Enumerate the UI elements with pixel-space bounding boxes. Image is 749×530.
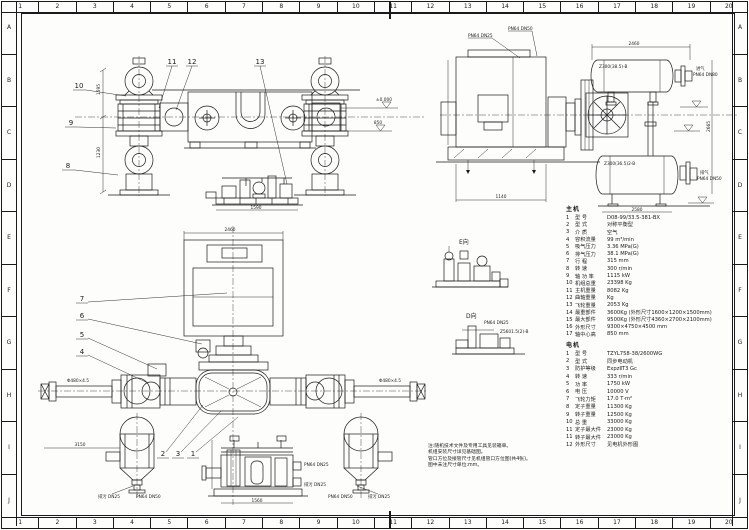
- note-line: 图中未注尺寸单位:mm。: [428, 463, 578, 469]
- spec-row-value: 850 mm: [607, 331, 742, 337]
- spec-row: 8 定子重量 11300 Kg: [566, 403, 742, 411]
- spec-row-label: 排气压力: [575, 251, 607, 258]
- spec-row-label: 轴中心高: [575, 331, 607, 338]
- spec-row-number: 2: [566, 358, 575, 364]
- part-tag: Z5601.5(2)-B: [500, 329, 528, 335]
- vessel-tag: Z300(38.5)-B: [599, 64, 627, 70]
- spec-row-number: 8: [566, 266, 575, 272]
- front-elevation-view: 1595 1230 ±0.000 850 10 9 8 11 12 13: [62, 56, 425, 196]
- level-label: ±0.000: [376, 97, 392, 103]
- spec-row-label: 机组总重: [575, 280, 607, 287]
- spec-row-number: 7: [566, 396, 575, 402]
- spec-list-motor-rows: 1 型 号 TZYL758-38/2600WG 2 型 式 同步电动机 3 防护…: [566, 350, 742, 449]
- spec-row-label: 飞轮重量: [575, 302, 607, 309]
- spec-row: 17 轴中心高 850 mm: [566, 331, 742, 338]
- spec-row-label: 轴 功 率: [575, 273, 607, 280]
- vessel-tag: Z300(36.5)2-B: [604, 161, 635, 167]
- spec-row-label: 最大部件: [575, 316, 607, 323]
- plan-buffer-vessel: [106, 413, 154, 498]
- spec-row-value: 23398 Kg: [607, 280, 742, 286]
- spec-row: 9 轴 功 率 1115 kW: [566, 272, 742, 279]
- spec-row: 16 外形尺寸 9300×4750×4500 mm: [566, 323, 742, 330]
- spec-row-value: 8082 Kg: [607, 288, 742, 294]
- spec-row-value: 9300×4750×4500 mm: [607, 324, 742, 330]
- spec-row-number: 1: [566, 215, 575, 221]
- spec-row-number: 15: [566, 317, 575, 323]
- nozzle-label: PN64 DN50: [697, 176, 722, 182]
- spec-row: 3 防护等级 ExpzⅡT3 Gc: [566, 365, 742, 373]
- spec-row-label: 曲轴重量: [575, 294, 607, 301]
- spec-row-number: 3: [566, 229, 575, 235]
- spec-row-label: 型 式: [575, 221, 607, 228]
- balloon-4: 4: [80, 348, 85, 356]
- spec-row-label: 总 重: [575, 419, 607, 426]
- dimension-label: 2665: [706, 121, 712, 132]
- spec-row-label: 转子重量: [575, 411, 607, 418]
- spec-list-main-rows: 1 型 号 D08-99/33.5-381-BX 2 型 式 对称平衡型 3 介…: [566, 214, 742, 338]
- spec-row-value: 9500Kg (外形尺寸4360×2700×2100mm): [607, 316, 742, 323]
- balloon-11: 11: [168, 58, 177, 66]
- balloon-3: 3: [176, 450, 180, 458]
- spec-row: 4 转 速 333 r/min: [566, 373, 742, 381]
- spec-list-motor: 电机 1 型 号 TZYL758-38/2600WG 2 型 式 同步电动机 3…: [566, 340, 742, 449]
- spec-row-value: ExpzⅡT3 Gc: [607, 366, 742, 372]
- dimension-label: 1560: [252, 498, 263, 504]
- spec-row-label: 主机重量: [575, 287, 607, 294]
- spec-row: 10 机组总重 23398 Kg: [566, 280, 742, 287]
- spec-row-value: 3.36 MPa(G): [607, 244, 742, 250]
- spec-row-label: 最重部件: [575, 309, 607, 316]
- dimension-label: 1595: [96, 84, 102, 95]
- spec-row: 11 转子最大件 23000 Kg: [566, 434, 742, 442]
- spec-row-value: TZYL758-38/2600WG: [607, 351, 742, 357]
- auxiliary-skid-detail-bottom: 1560 PN64 DN25 排污 DN25: [202, 436, 329, 504]
- spec-row-value: D08-99/33.5-381-BX: [607, 215, 742, 221]
- spec-row-number: 14: [566, 310, 575, 316]
- spec-row-number: 17: [566, 331, 575, 337]
- detail-view-e: E向: [432, 238, 508, 287]
- connection-label: PN64 DN25: [484, 320, 509, 326]
- spec-row-label: 型 号: [575, 214, 607, 221]
- detail-view-label: D向: [466, 312, 477, 320]
- spec-row-number: 8: [566, 404, 575, 410]
- spec-row: 15 最大部件 9500Kg (外形尺寸4360×2700×2100mm): [566, 316, 742, 323]
- balloon-5: 5: [80, 331, 84, 339]
- spec-row-label: 外形尺寸: [575, 441, 607, 448]
- plan-cylinder-assembly-mirrored: [270, 375, 425, 408]
- balloon-1: 1: [191, 450, 195, 458]
- spec-row-number: 2: [566, 222, 575, 228]
- spec-row-value: 对称平衡型: [607, 221, 742, 228]
- spec-row-number: 1: [566, 351, 575, 357]
- dimension-label: 2460: [225, 227, 236, 233]
- spec-row-value: 300 r/min: [607, 266, 742, 272]
- spec-row: 12 外形尺寸 见电机外形图: [566, 441, 742, 449]
- spec-row-label: 介 质: [575, 229, 607, 236]
- spec-row-label: 外形尺寸: [575, 324, 607, 331]
- spec-row: 10 总 重 33000 Kg: [566, 418, 742, 426]
- spec-row-value: 315 mm: [607, 258, 742, 264]
- spec-row: 7 行 程 315 mm: [566, 258, 742, 265]
- spec-row-number: 10: [566, 419, 575, 425]
- nozzle-label: 排污 DN25: [368, 493, 390, 500]
- connection-label: 排污 DN25: [304, 481, 326, 488]
- spec-row-number: 5: [566, 244, 575, 250]
- pipe-spec-label: Φ480×4.5: [67, 378, 89, 384]
- spec-row-value: 17.0 T·m²: [607, 396, 742, 402]
- spec-row-label: 定子最大件: [575, 426, 607, 433]
- spec-row: 5 吸气压力 3.36 MPa(G): [566, 243, 742, 250]
- spec-row-label: 转 速: [575, 265, 607, 272]
- connection-label: PN64 DN25: [304, 462, 329, 468]
- spec-row-number: 6: [566, 251, 575, 257]
- spec-row-value: 23000 Kg: [607, 434, 742, 440]
- drawing-sheet: { "sheet": {"bg": "#fdfdfc", "ink": "#1a…: [0, 0, 749, 530]
- spec-row-label: 型 式: [575, 358, 607, 365]
- nozzle-label: 排气: [700, 169, 709, 176]
- notes-block: 注:随机技术文件及专用工具见装箱单。机组安装尺寸详见基础图。管口方位及接管尺寸见…: [428, 444, 578, 469]
- plan-buffer-vessel-mirrored: [344, 413, 392, 498]
- spec-row-label: 行 程: [575, 258, 607, 265]
- spec-row: 5 功 率 1750 kW: [566, 380, 742, 388]
- spec-row: 2 型 式 对称平衡型: [566, 221, 742, 228]
- spec-row: 8 转 速 300 r/min: [566, 265, 742, 272]
- nozzle-label: 进气: [696, 65, 705, 72]
- spec-row-value: 3600Kg (外形尺寸1600×1200×1500mm): [607, 309, 742, 316]
- spec-row-label: 容积流量: [575, 236, 607, 243]
- spec-row-label: 型 号: [575, 350, 607, 357]
- spec-row-number: 4: [566, 237, 575, 243]
- spec-row-number: 7: [566, 258, 575, 264]
- plan-cylinder-assembly: [41, 375, 196, 408]
- spec-row-label: 电 压: [575, 388, 607, 395]
- spec-row: 1 型 号 TZYL758-38/2600WG: [566, 350, 742, 358]
- spec-row-number: 9: [566, 412, 575, 418]
- spec-row-number: 16: [566, 324, 575, 330]
- balloon-6: 6: [80, 312, 85, 320]
- spec-row: 1 型 号 D08-99/33.5-381-BX: [566, 214, 742, 221]
- dimension-label: 1230: [96, 147, 102, 158]
- balloon-9: 9: [69, 119, 73, 127]
- spec-row-value: 99 m³/min: [607, 237, 742, 243]
- spec-list-main: 主机 1 型 号 D08-99/33.5-381-BX 2 型 式 对称平衡型 …: [566, 204, 742, 338]
- spec-row: 7 飞轮力矩 17.0 T·m²: [566, 396, 742, 404]
- spec-row: 11 主机重量 8082 Kg: [566, 287, 742, 294]
- spec-row-number: 11: [566, 427, 575, 433]
- spec-row-label: 转 速: [575, 373, 607, 380]
- spec-row-value: 12500 Kg: [607, 412, 742, 418]
- spec-row-value: 同步电动机: [607, 358, 742, 365]
- spec-row-value: 33000 Kg: [607, 419, 742, 425]
- level-label: 850: [374, 120, 382, 126]
- spec-row-number: 10: [566, 280, 575, 286]
- spec-row-value: 10000 V: [607, 389, 742, 395]
- spec-row: 4 容积流量 99 m³/min: [566, 236, 742, 243]
- dimension-label: 1590: [251, 205, 262, 211]
- side-elevation-view: Z300(38.5)-B 进气 PN64 DN80 Z300(36.5)2-B …: [436, 26, 737, 213]
- spec-row-label: 功 率: [575, 381, 607, 388]
- balloon-12: 12: [188, 58, 197, 66]
- spec-row-label: 转子最大件: [575, 434, 607, 441]
- spec-row: 9 转子重量 12500 Kg: [566, 411, 742, 419]
- spec-row-value: 空气: [607, 229, 742, 236]
- spec-row: 6 排气压力 38.1 MPa(G): [566, 250, 742, 257]
- spec-row-value: 2053 Kg: [607, 302, 742, 308]
- spec-row: 6 电 压 10000 V: [566, 388, 742, 396]
- spec-row-value: 333 r/min: [607, 374, 742, 380]
- spec-row: 13 飞轮重量 2053 Kg: [566, 302, 742, 309]
- spec-row: 14 最重部件 3600Kg (外形尺寸1600×1200×1500mm): [566, 309, 742, 316]
- balloon-7: 7: [80, 295, 84, 303]
- dimension-label: 3150: [75, 442, 86, 448]
- spec-row: 12 曲轴重量 Kg: [566, 294, 742, 301]
- spec-row-number: 6: [566, 389, 575, 395]
- spec-row-value: 23000 Kg: [607, 427, 742, 433]
- spec-row-number: 12: [566, 295, 575, 301]
- spec-row-number: 13: [566, 302, 575, 308]
- balloon-10: 10: [75, 82, 84, 90]
- balloon-2: 2: [161, 450, 165, 458]
- nozzle-label: PN64 DN50: [136, 494, 161, 500]
- spec-row-value: Kg: [607, 295, 742, 301]
- detail-view-d: D向 PN64 DN25 Z5601.5(2)-B: [452, 312, 528, 354]
- spec-row: 3 介 质 空气: [566, 229, 742, 236]
- spec-row-label: 飞轮力矩: [575, 396, 607, 403]
- dimension-label: 2460: [629, 41, 640, 47]
- pipe-spec-label: Φ480×4.5: [379, 378, 401, 384]
- plan-view: 2460 3150 Φ480×4.5 Φ480×4.5 排污 DN25 PN64…: [38, 226, 428, 505]
- spec-row-number: 3: [566, 366, 575, 372]
- spec-list-main-title: 主机: [566, 204, 742, 213]
- spec-row-label: 吸气压力: [575, 243, 607, 250]
- spec-row-number: 5: [566, 381, 575, 387]
- nozzle-label: PN64 DN50: [328, 494, 353, 500]
- spec-row-number: 11: [566, 434, 575, 440]
- spec-list-motor-title: 电机: [566, 340, 742, 349]
- detail-view-label: E向: [459, 238, 469, 246]
- spec-row-number: 4: [566, 374, 575, 380]
- spec-row: 2 型 式 同步电动机: [566, 358, 742, 366]
- spec-row: 11 定子最大件 23000 Kg: [566, 426, 742, 434]
- spec-row-value: 见电机外形图: [607, 441, 742, 448]
- nozzle-label: 排污 DN25: [98, 493, 120, 500]
- spec-row-number: 11: [566, 288, 575, 294]
- spec-row-label: 定子重量: [575, 403, 607, 410]
- spec-row-label: 防护等级: [575, 365, 607, 372]
- dimension-label: 1140: [496, 194, 507, 200]
- spec-row-value: 38.1 MPa(G): [607, 251, 742, 257]
- spec-row-value: 11300 Kg: [607, 404, 742, 410]
- spec-row-number: 9: [566, 273, 575, 279]
- spec-row-value: 1115 kW: [607, 273, 742, 279]
- balloon-8: 8: [66, 162, 70, 170]
- balloon-13: 13: [256, 58, 265, 66]
- nozzle-label: PN64 DN80: [693, 72, 718, 78]
- spec-row-value: 1750 kW: [607, 381, 742, 387]
- auxiliary-skid-detail-top: 1590: [206, 176, 303, 211]
